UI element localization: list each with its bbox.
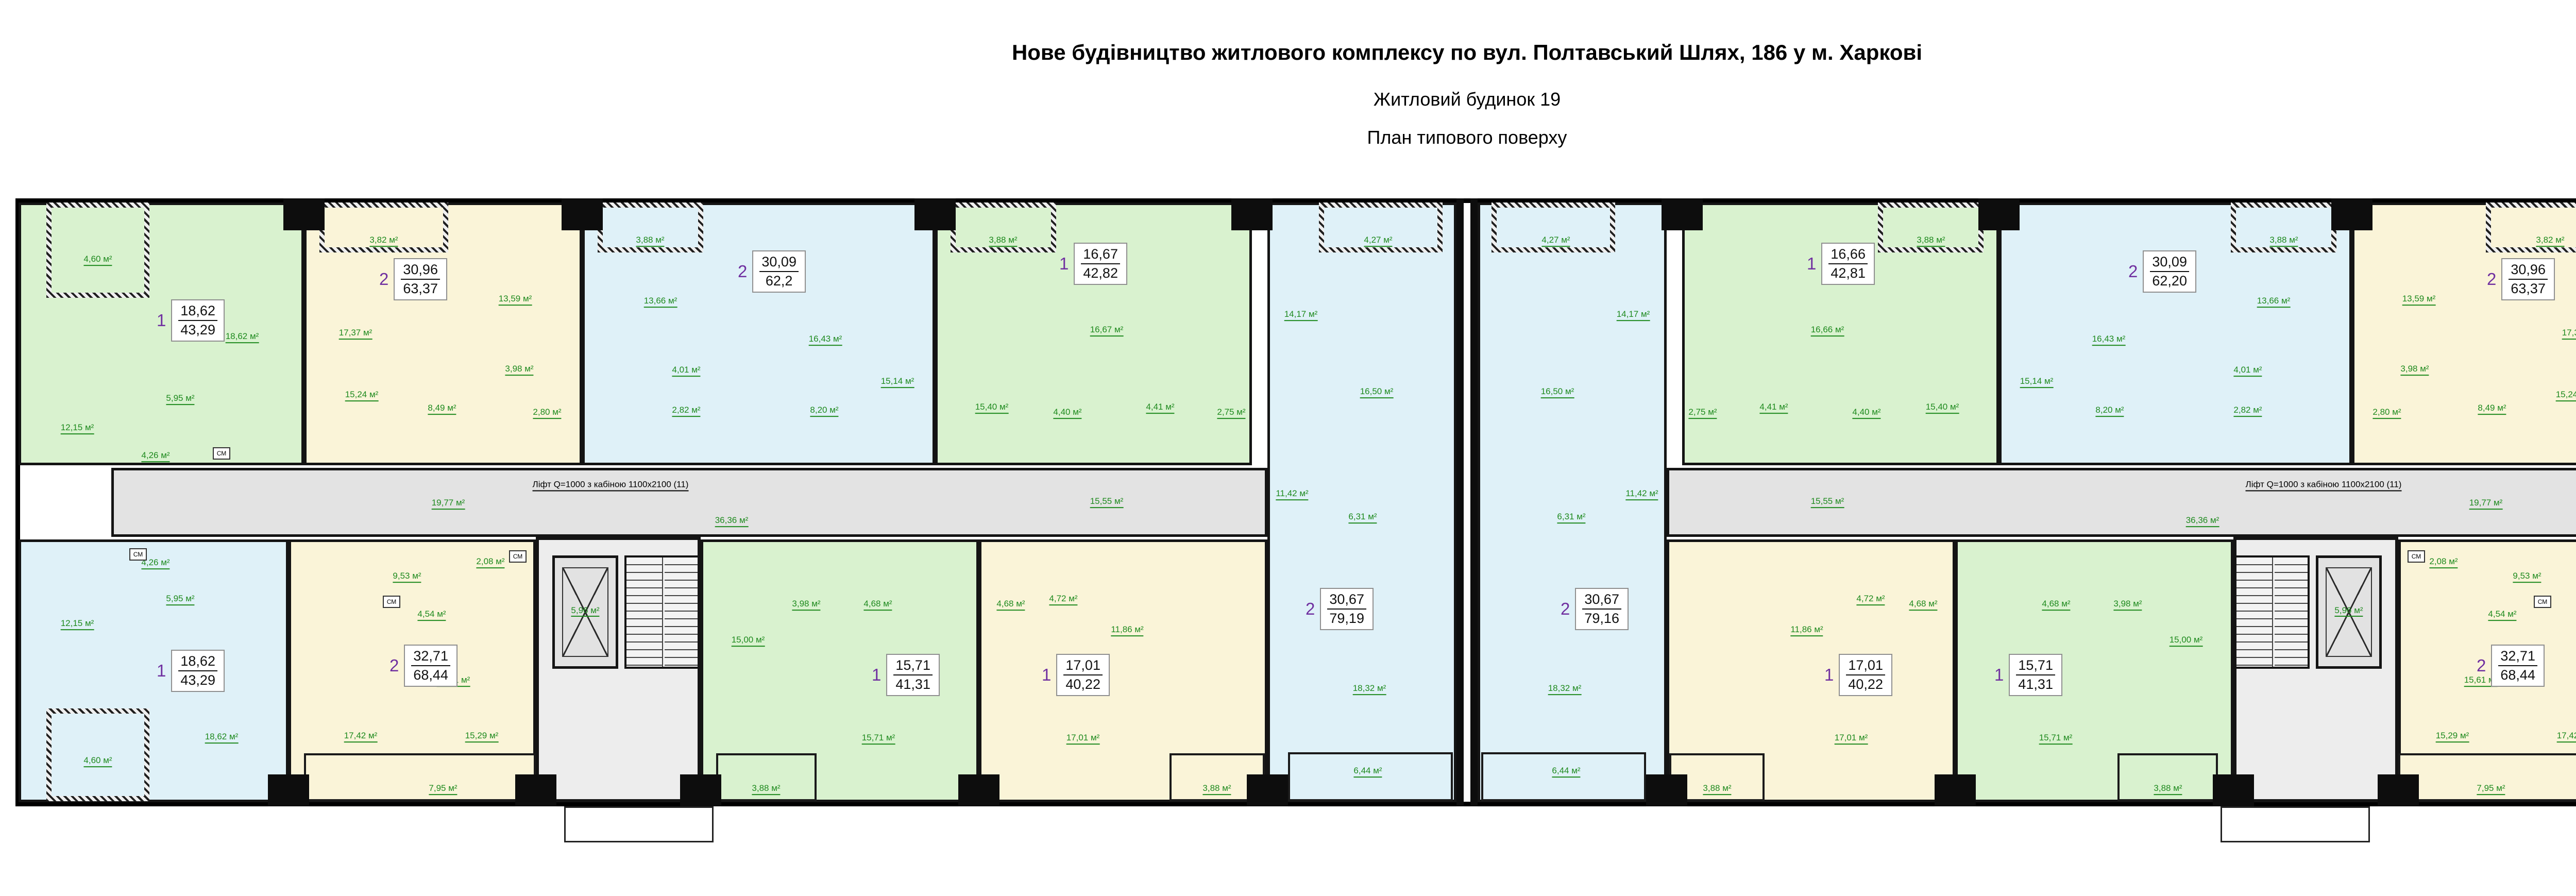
apartment-label-box: 117,0140,22 — [1042, 654, 1110, 696]
total-area-value: 43,29 — [178, 671, 217, 688]
apartment-label-box: 118,6243,29 — [157, 650, 225, 692]
room-area-label: 4,54 м² — [2488, 610, 2516, 621]
apartment-areas: 30,9663,37 — [394, 258, 447, 300]
total-area-value: 63,37 — [2509, 280, 2548, 297]
living-area-value: 32,71 — [2498, 648, 2537, 666]
balcony-area-label: 4,27 м² — [1541, 235, 1570, 247]
stairs — [2234, 555, 2310, 669]
apartment-areas: 18,6243,29 — [171, 299, 225, 342]
living-area-value: 17,01 — [1846, 657, 1885, 675]
lift-shaft-area-label: 5,96 м² — [571, 605, 599, 617]
apartment-label-box: 230,6779,19 — [1306, 588, 1374, 630]
apartment-room-count: 2 — [2477, 656, 2486, 675]
total-area-value: 62,20 — [2150, 272, 2189, 289]
entrance-porch — [564, 806, 714, 842]
room-area-label: 18,32 м² — [1353, 684, 1386, 695]
apartment-areas: 16,6742,82 — [1074, 243, 1127, 285]
facade-pier — [1646, 774, 1687, 806]
facade-pier — [283, 198, 325, 230]
apartment-room-count: 1 — [872, 665, 881, 685]
balcony-area-label: 3,88 м² — [752, 784, 780, 795]
room-area-label: 2,75 м² — [1688, 408, 1717, 419]
room-area-label: 14,17 м² — [1284, 310, 1318, 321]
room-area-label: 4,68 м² — [1909, 599, 1937, 611]
living-area-value: 16,66 — [1828, 246, 1868, 264]
facade-pier — [1978, 198, 2020, 230]
balcony-bottom-1room-blue-corner-0 — [46, 708, 149, 801]
expansion-joint — [1456, 198, 1464, 806]
facade-pier — [1935, 774, 1976, 806]
total-area-value: 79,16 — [1582, 610, 1621, 627]
total-area-value: 42,82 — [1081, 264, 1120, 281]
living-area-value: 18,62 — [178, 303, 217, 321]
apartment-room-count: 2 — [2487, 269, 2496, 289]
balcony-area-label: 3,88 м² — [989, 235, 1017, 247]
room-area-label: 15,24 м² — [2556, 390, 2576, 401]
total-area-value: 40,22 — [1063, 675, 1103, 692]
room-area-label: 5,95 м² — [166, 394, 194, 405]
room-area-label: 2,82 м² — [672, 405, 700, 417]
apartment-label-box: 116,6742,82 — [1059, 243, 1127, 285]
living-area-value: 32,71 — [411, 648, 450, 666]
balcony-area-label: 7,95 м² — [2477, 784, 2505, 795]
room-area-label: 3,98 м² — [792, 599, 820, 611]
corridor-label: 15,55 м² — [1811, 497, 1844, 508]
balcony-area-label: 3,88 м² — [2269, 235, 2298, 247]
living-area-value: 30,96 — [2509, 262, 2548, 280]
total-area-value: 43,29 — [178, 321, 217, 338]
entrance-porch — [2221, 806, 2370, 842]
room-area-label: 13,59 м² — [499, 294, 532, 306]
living-area-value: 30,09 — [2150, 254, 2189, 272]
washing-machine-marker: СМ — [383, 596, 400, 608]
corridor-label: 19,77 м² — [2469, 498, 2503, 510]
stairs-divider — [2272, 557, 2275, 667]
room-area-label: 14,17 м² — [1617, 310, 1650, 321]
room-area-label: 16,43 м² — [809, 334, 842, 346]
room-area-label: 4,40 м² — [1053, 408, 1081, 419]
room-area-label: 16,66 м² — [1811, 325, 1844, 336]
room-area-label: 4,54 м² — [417, 610, 446, 621]
apartment-label-box: 230,9663,37 — [379, 258, 447, 300]
apartment-areas: 16,6642,81 — [1821, 243, 1875, 285]
room-area-label: 18,32 м² — [1548, 684, 1582, 695]
corridor-label: 19,77 м² — [432, 498, 465, 510]
room-area-label: 17,01 м² — [1835, 733, 1868, 745]
corridor — [1667, 468, 2576, 537]
room-area-label: 5,95 м² — [166, 594, 194, 605]
stairs-divider — [662, 557, 665, 667]
room-area-label: 4,40 м² — [1852, 408, 1880, 419]
corridor-label: 36,36 м² — [2186, 516, 2219, 527]
room-area-label: 15,24 м² — [345, 390, 379, 401]
apartment-room-count: 1 — [1807, 254, 1816, 274]
room-area-label: 16,43 м² — [2092, 334, 2126, 346]
apartment-areas: 18,6243,29 — [171, 650, 225, 692]
apartment-label-box: 230,9663,37 — [2487, 258, 2555, 300]
apartment-room-count: 2 — [379, 269, 388, 289]
balcony-bottom-2room-yellow-0 — [304, 753, 536, 801]
apartment-label-box: 232,7168,44 — [389, 645, 457, 687]
living-area-value: 16,67 — [1081, 246, 1120, 264]
balcony-area-label: 6,44 м² — [1353, 766, 1382, 777]
total-area-value: 40,22 — [1846, 675, 1885, 692]
living-area-value: 15,71 — [893, 657, 933, 675]
living-area-value: 17,01 — [1063, 657, 1103, 675]
expansion-joint — [1470, 198, 1478, 806]
room-area-label: 15,29 м² — [2436, 731, 2469, 742]
facade-pier — [1247, 774, 1288, 806]
apartment-room-count: 2 — [738, 262, 747, 281]
balcony-area-label: 4,60 м² — [83, 756, 112, 767]
apartment-areas: 30,6779,19 — [1320, 588, 1374, 630]
living-area-value: 15,71 — [2016, 657, 2055, 675]
total-area-value: 41,31 — [2016, 675, 2055, 692]
apartment-label-box: 116,6642,81 — [1807, 243, 1875, 285]
facade-pier — [562, 198, 603, 230]
facade-pier — [958, 774, 999, 806]
room-area-label: 8,20 м² — [810, 405, 838, 417]
room-area-label: 11,42 м² — [1625, 489, 1658, 500]
balcony-area-label: 7,95 м² — [429, 784, 457, 795]
apartment-room-count: 1 — [1059, 254, 1069, 274]
room-area-label: 8,20 м² — [2095, 405, 2124, 417]
living-area-value: 30,09 — [759, 254, 799, 272]
apartment-label-box: 230,6779,16 — [1561, 588, 1629, 630]
corridor-label: 15,55 м² — [1090, 497, 1124, 508]
balcony-area-label: 3,88 м² — [1917, 235, 1945, 247]
apartment-areas: 15,7141,31 — [2009, 654, 2062, 696]
room-area-label: 9,53 м² — [393, 571, 421, 583]
corridor-label: Ліфт Q=1000 з кабіною 1100х2100 (11) — [2246, 480, 2402, 492]
room-area-label: 13,66 м² — [644, 296, 677, 308]
room-area-label: 4,41 м² — [1759, 402, 1788, 414]
room-area-label: 13,66 м² — [2257, 296, 2291, 308]
total-area-value: 63,37 — [401, 280, 440, 297]
room-area-label: 2,80 м² — [2372, 408, 2401, 419]
room-area-label: 8,49 м² — [2478, 403, 2506, 415]
balcony-area-label: 3,88 м² — [1202, 784, 1231, 795]
room-area-label: 17,42 м² — [344, 731, 378, 742]
balcony-area-label: 3,88 м² — [636, 235, 664, 247]
apartment-areas: 32,7168,44 — [2491, 645, 2545, 687]
facade-pier — [515, 774, 556, 806]
room-area-label: 15,71 м² — [2039, 733, 2073, 745]
room-area-label: 15,14 м² — [881, 377, 914, 388]
stairs — [624, 555, 700, 669]
apartment-label-box: 115,7141,31 — [1994, 654, 2062, 696]
apartment-label-box: 118,6243,29 — [157, 299, 225, 342]
apartment-room-count: 1 — [157, 311, 166, 330]
room-area-label: 6,31 м² — [1557, 512, 1585, 523]
room-area-label: 13,59 м² — [2402, 294, 2436, 306]
room-area-label: 6,31 м² — [1348, 512, 1377, 523]
room-area-label: 15,00 м² — [732, 635, 765, 647]
room-area-label: 3,98 м² — [2113, 599, 2142, 611]
apartment-label-box: 115,7141,31 — [872, 654, 940, 696]
facade-pier — [2213, 774, 2254, 806]
facade-pier — [1231, 198, 1273, 230]
balcony-area-label: 3,82 м² — [369, 235, 398, 247]
room-area-label: 3,98 м² — [2400, 364, 2429, 376]
living-area-value: 30,67 — [1582, 591, 1621, 610]
lift-shaft-area-label: 5,96 м² — [2334, 605, 2363, 617]
balcony-area-label: 3,82 м² — [2536, 235, 2564, 247]
washing-machine-marker: СМ — [2534, 596, 2551, 608]
room-area-label: 11,42 м² — [1276, 489, 1308, 500]
room-area-label: 4,68 м² — [996, 599, 1025, 611]
apartment-room-count: 2 — [1561, 599, 1570, 619]
room-area-label: 12,15 м² — [61, 619, 94, 630]
apartment-areas: 30,6779,16 — [1575, 588, 1629, 630]
floor-plan-drawing: 4,60 м²18,62 м²5,95 м²12,15 м²4,26 м²118… — [0, 0, 2576, 896]
living-area-value: 30,67 — [1327, 591, 1366, 610]
room-area-label: 4,68 м² — [2042, 599, 2070, 611]
room-area-label: 15,40 м² — [975, 402, 1009, 414]
total-area-value: 68,44 — [2498, 666, 2537, 683]
room-area-label: 4,41 м² — [1146, 402, 1174, 414]
washing-machine-marker: СМ — [213, 447, 230, 460]
room-area-label: 18,62 м² — [205, 732, 239, 743]
facade-pier — [680, 774, 721, 806]
apartment-room-count: 2 — [2128, 262, 2138, 281]
apartment-areas: 30,9663,37 — [2501, 258, 2555, 300]
apartment-room-count: 1 — [1824, 665, 1834, 685]
apartment-room-count: 2 — [389, 656, 399, 675]
room-area-label: 11,86 м² — [1790, 625, 1823, 636]
room-area-label: 11,86 м² — [1111, 625, 1143, 636]
room-area-label: 15,14 м² — [2020, 377, 2054, 388]
balcony-area-label: 4,27 м² — [1364, 235, 1392, 247]
room-area-label: 2,75 м² — [1217, 408, 1245, 419]
apartment-areas: 15,7141,31 — [886, 654, 940, 696]
room-area-label: 2,80 м² — [533, 408, 561, 419]
facade-pier — [2331, 198, 2372, 230]
balcony-area-label: 3,88 м² — [1703, 784, 1731, 795]
room-area-label: 4,26 м² — [141, 451, 170, 462]
apartment-room-count: 1 — [1994, 665, 2004, 685]
apartment-room-count: 1 — [1042, 665, 1051, 685]
washing-machine-marker: СМ — [2408, 550, 2425, 563]
room-area-label: 16,50 м² — [1360, 387, 1394, 398]
total-area-value: 42,81 — [1828, 264, 1868, 281]
apartment-areas: 30,0962,20 — [2143, 250, 2196, 293]
apartment-areas: 17,0140,22 — [1839, 654, 1892, 696]
room-area-label: 17,37 м² — [339, 328, 372, 340]
apartment-label-box: 230,0962,20 — [2128, 250, 2196, 293]
room-area-label: 4,01 м² — [672, 365, 700, 377]
room-area-label: 8,49 м² — [428, 403, 456, 415]
room-area-label: 17,37 м² — [2562, 328, 2576, 340]
corridor-label: Ліфт Q=1000 з кабіною 1100х2100 (11) — [533, 480, 689, 492]
room-area-label: 3,98 м² — [505, 364, 533, 376]
room-area-label: 12,15 м² — [61, 423, 94, 434]
total-area-value: 68,44 — [411, 666, 450, 683]
total-area-value: 41,31 — [893, 675, 933, 692]
balcony-area-label: 6,44 м² — [1552, 766, 1580, 777]
balcony-corner-1room-0 — [46, 202, 149, 298]
room-area-label: 2,82 м² — [2233, 405, 2262, 417]
room-area-label: 16,50 м² — [1541, 387, 1574, 398]
room-area-label: 9,53 м² — [2513, 571, 2541, 583]
facade-pier — [2378, 774, 2419, 806]
apartment-areas: 17,0140,22 — [1056, 654, 1110, 696]
apartment-label-box: 230,0962,2 — [738, 250, 806, 293]
room-area-label: 4,72 м² — [1049, 594, 1077, 605]
room-area-label: 4,01 м² — [2233, 365, 2262, 377]
room-area-label: 4,72 м² — [1856, 594, 1885, 605]
washing-machine-marker: СМ — [129, 548, 147, 561]
apartment-room-count: 1 — [157, 661, 166, 681]
apartment-areas: 32,7168,44 — [404, 645, 457, 687]
apartment-through-2room-blue — [1478, 202, 1667, 802]
facade-pier — [1662, 198, 1703, 230]
total-area-value: 62,2 — [759, 272, 799, 289]
apartment-areas: 30,0962,2 — [752, 250, 806, 293]
apartment-room-count: 2 — [1306, 599, 1315, 619]
floor-plan-page: Нове будівництво житлового комплексу по … — [0, 0, 2576, 896]
balcony-area-label: 3,88 м² — [2154, 784, 2182, 795]
living-area-value: 18,62 — [178, 653, 217, 671]
room-area-label: 15,29 м² — [465, 731, 499, 742]
room-area-label: 15,40 м² — [1926, 402, 1959, 414]
facade-pier — [268, 774, 309, 806]
apartment-label-box: 117,0140,22 — [1824, 654, 1892, 696]
room-area-label: 17,42 м² — [2557, 731, 2576, 742]
room-area-label: 17,01 м² — [1066, 733, 1100, 745]
corridor-label: 36,36 м² — [715, 516, 749, 527]
apartment-label-box: 232,7168,44 — [2477, 645, 2545, 687]
room-area-label: 18,62 м² — [226, 332, 259, 343]
apartment-through-2room-blue — [1267, 202, 1456, 802]
washing-machine-marker: СМ — [509, 550, 527, 563]
facade-pier — [914, 198, 956, 230]
balcony-area-label: 4,60 м² — [83, 255, 112, 266]
room-area-label: 16,67 м² — [1090, 325, 1124, 336]
room-area-label: 4,68 м² — [863, 599, 892, 611]
living-area-value: 30,96 — [401, 262, 440, 280]
room-area-label: 15,00 м² — [2170, 635, 2203, 647]
total-area-value: 79,19 — [1327, 610, 1366, 627]
room-area-label: 15,71 м² — [862, 733, 895, 745]
room-area-label: 2,08 м² — [476, 557, 504, 568]
room-area-label: 2,08 м² — [2429, 557, 2458, 568]
